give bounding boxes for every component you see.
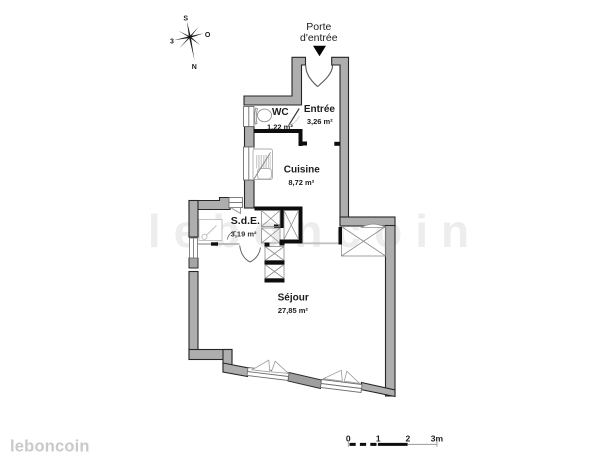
- svg-text:d'entrée: d'entrée: [300, 32, 338, 44]
- svg-text:8,72 m²: 8,72 m²: [288, 178, 314, 187]
- svg-text:N: N: [192, 64, 197, 71]
- svg-text:Cuisine: Cuisine: [284, 164, 321, 175]
- svg-text:3,26 m²: 3,26 m²: [307, 117, 333, 126]
- svg-text:3m: 3m: [431, 433, 444, 443]
- svg-text:3: 3: [170, 39, 174, 46]
- svg-text:WC: WC: [272, 107, 289, 118]
- svg-text:27,85 m²: 27,85 m²: [278, 306, 309, 315]
- svg-text:3,19 m²: 3,19 m²: [231, 230, 257, 239]
- svg-text:Porte: Porte: [306, 21, 331, 33]
- svg-text:Entrée: Entrée: [304, 104, 336, 115]
- svg-text:leboncoin: leboncoin: [10, 438, 90, 456]
- svg-text:Séjour: Séjour: [278, 292, 309, 303]
- svg-text:0: 0: [346, 433, 351, 443]
- svg-text:O: O: [205, 32, 211, 39]
- svg-text:S: S: [183, 16, 188, 23]
- svg-text:2: 2: [406, 433, 411, 443]
- svg-text:1: 1: [376, 433, 381, 443]
- svg-text:1,22 m²: 1,22 m²: [267, 123, 293, 132]
- svg-text:S.d.E.: S.d.E.: [231, 215, 260, 227]
